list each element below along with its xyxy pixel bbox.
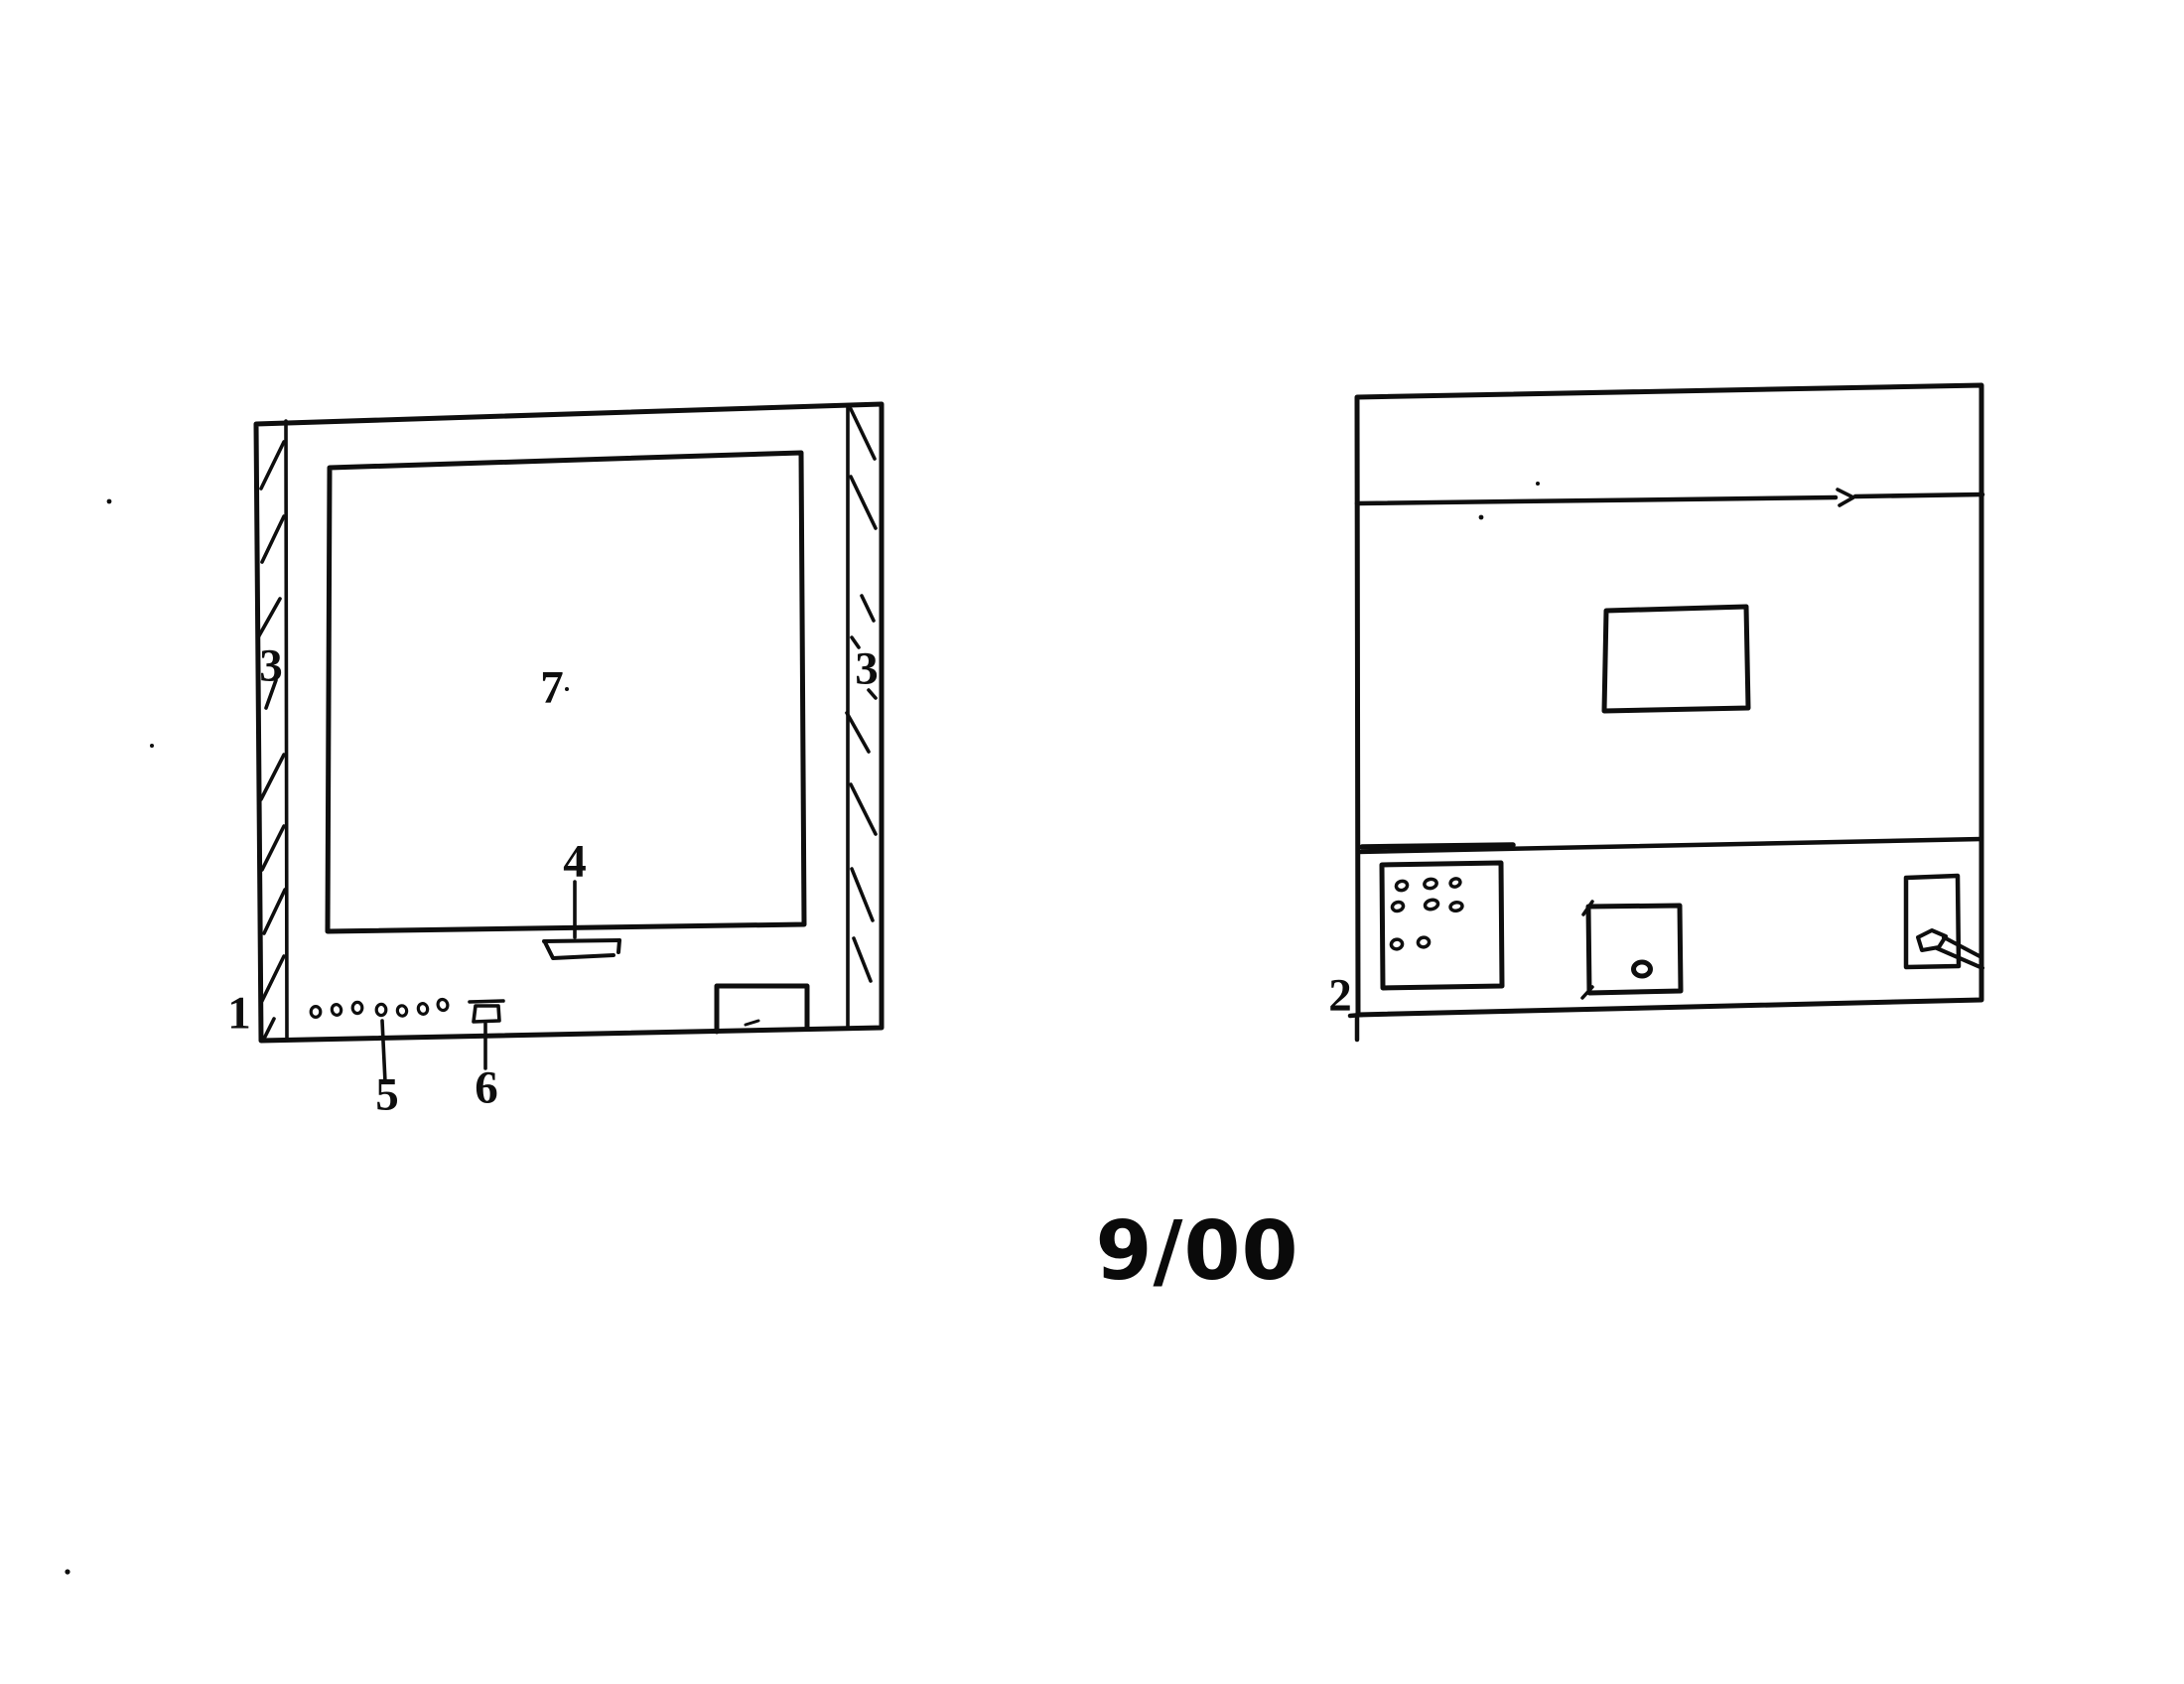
fig2-lower-band-line [1358,839,1981,852]
fig1-hatch-left-label: 3 [259,643,283,690]
fig2-inner-rectangle-outline [1604,607,1748,711]
fig2-frame-outline [1357,385,1981,1015]
fig2-middle-box-outline [1582,902,1681,998]
fig1-frame-outline [256,404,882,1041]
fig2-keypad-buttons [1391,878,1463,950]
fig1-connector-label: 6 [475,1065,498,1112]
fig2-bottom-edge-overshoot [1350,1015,1362,1016]
sheet-page-indicator: 9/00 [1095,1211,1298,1293]
fig2-middle-box-knob [1634,962,1651,976]
fig1-slot-outline [544,940,619,958]
fig1-led-row-label: 5 [375,1072,399,1119]
fig1-connector-outline [470,1001,503,1022]
figure2-rear-elevation [1350,385,1982,1040]
fig1-ref-label: 1 [227,991,251,1038]
figure1-front-elevation [256,404,882,1082]
fig1-led-indicator-row [311,998,449,1017]
fig2-ref-label: 2 [1328,973,1352,1020]
patent-drawing-sheet: 1 3 3 4 5 6 7 2 9/00 [0,0,2184,1684]
line-art [0,0,2184,1684]
fig1-screen-label: 7 [540,665,564,712]
fig1-right-hatch-panel [847,406,876,1029]
fig1-hatch-right-label: 3 [855,646,879,693]
pointer-arrow-icon [1918,930,1982,968]
fig2-top-band-line [1357,490,1982,505]
fig1-slot-label: 4 [563,839,587,886]
fig1-corner-box-outline [717,986,807,1032]
